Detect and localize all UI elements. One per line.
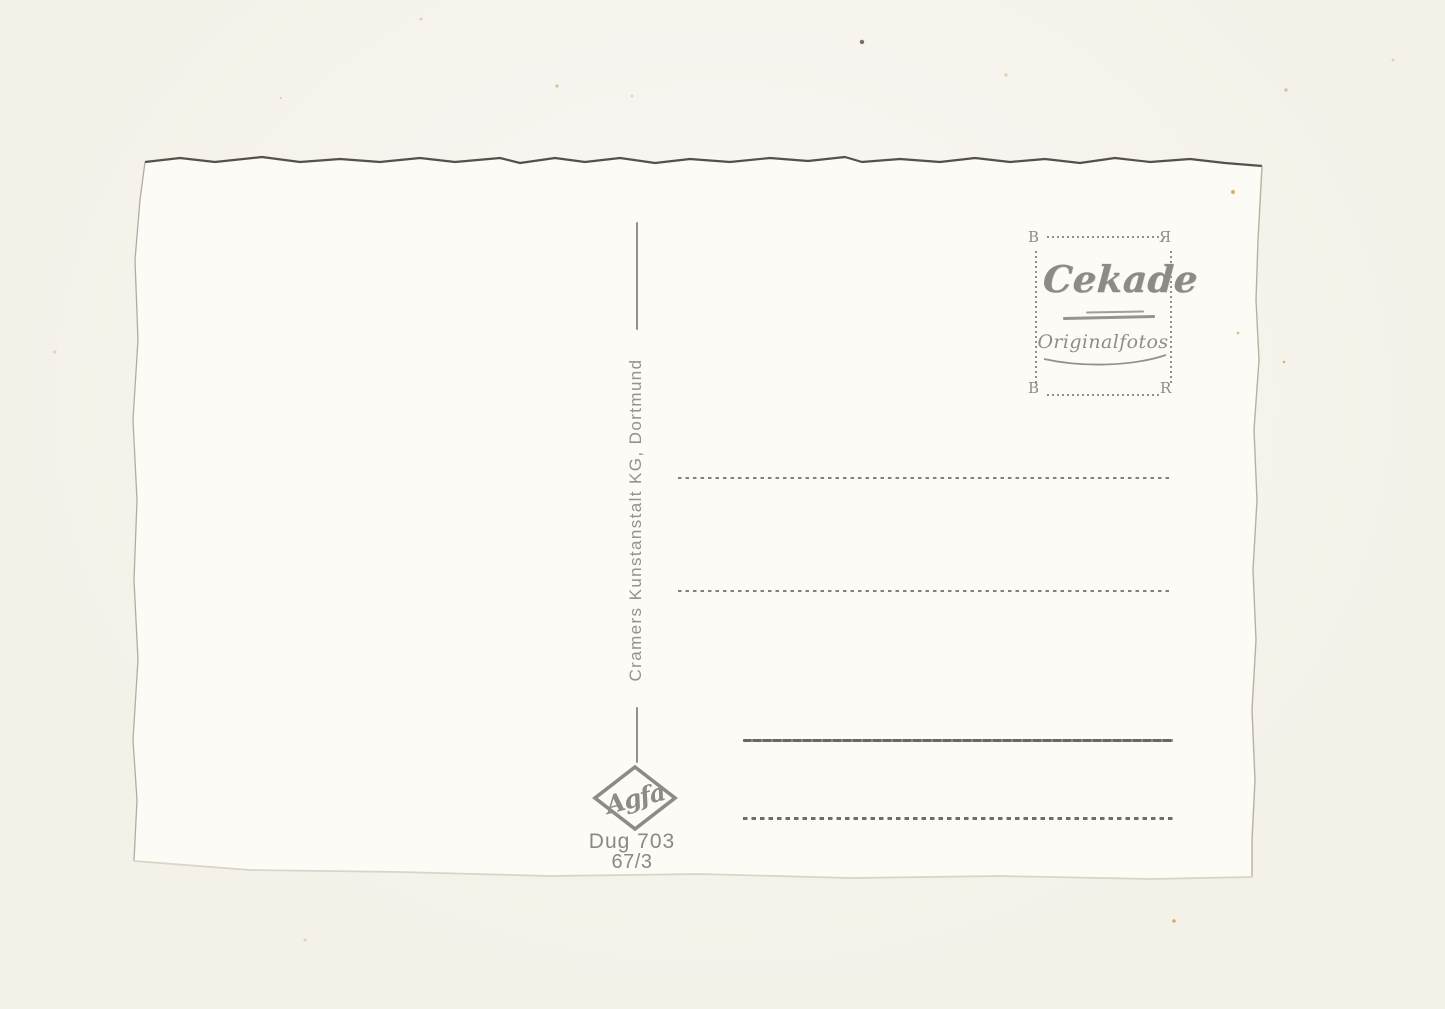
stamp-box-edge-left bbox=[1035, 251, 1037, 384]
postcard-paper bbox=[0, 0, 1445, 1009]
stamp-box-corner-mark-br: R bbox=[1160, 381, 1171, 396]
address-line-3 bbox=[743, 739, 1173, 742]
divider-line-bottom bbox=[636, 707, 638, 763]
stamp-box-corner-mark-tl: B bbox=[1028, 230, 1039, 245]
address-line-1 bbox=[678, 477, 1170, 479]
print-code-line-2: 67/3 bbox=[572, 851, 692, 874]
publisher-imprint: Cramers Kunstanstalt KG, Dortmund bbox=[626, 340, 648, 700]
originalfotos-label: Originalfotos bbox=[1036, 331, 1170, 353]
address-line-2 bbox=[678, 590, 1170, 592]
cekade-brand-stamp: Cekade bbox=[1041, 257, 1168, 301]
stamp-box-corner-mark-bl: B bbox=[1028, 381, 1039, 396]
divider-line-top bbox=[636, 222, 638, 330]
stamp-box-corner-mark-tr: Я bbox=[1159, 230, 1171, 245]
address-line-4 bbox=[743, 817, 1173, 820]
stamp-box-edge-top bbox=[1047, 236, 1159, 238]
scan-background: Cramers Kunstanstalt KG, Dortmund B Я B … bbox=[0, 0, 1445, 1009]
originalfotos-swash bbox=[1040, 352, 1170, 368]
stamp-box-edge-bottom bbox=[1047, 394, 1159, 396]
agfa-logo: Agfa bbox=[592, 764, 678, 832]
